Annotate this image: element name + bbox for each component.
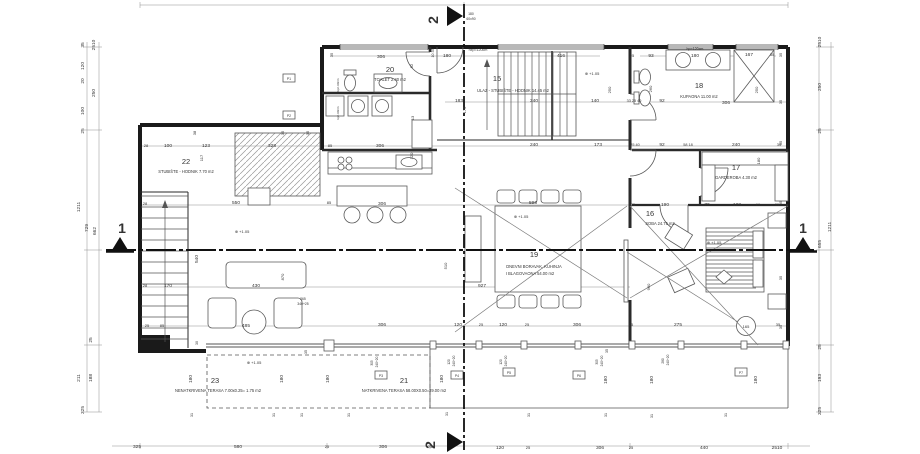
console-table [248, 188, 270, 205]
dim-label: 35 [605, 349, 609, 353]
dining-chair [497, 295, 515, 308]
dim-label: 25 [630, 53, 635, 58]
dim-label: 25 [817, 344, 823, 350]
dim-label: 70 [704, 202, 710, 208]
dim-label: 13 [410, 115, 415, 120]
dim-label: hxp=120cm [469, 48, 488, 52]
dim-label: 211 [76, 374, 82, 382]
room-label: NENATKRIVENA TERASA 7.00x0.25= 1.75 m2 [175, 388, 262, 393]
dim-label: 35 [778, 52, 783, 57]
dim-label: 180 [468, 12, 474, 16]
dining-chair [519, 295, 537, 308]
dining-chair [541, 190, 559, 203]
dim-label: 240+20 [666, 354, 670, 365]
dim-label: 306 [377, 54, 385, 60]
post [430, 341, 436, 349]
dim-label: 120 [447, 359, 451, 365]
dim-label: 25 [145, 323, 150, 328]
post [521, 341, 527, 349]
section-label: 1 [799, 220, 807, 236]
dim-label: 25 [80, 128, 86, 134]
dim-label: 25 [629, 322, 634, 327]
dim-label: 35 [80, 42, 86, 48]
wc-bowl [640, 69, 651, 85]
wardrobe-shelf [775, 165, 788, 201]
room-label: NATKRIVENA TERASA 58.00X0.50=29.00 m2 [362, 388, 447, 393]
pillow [753, 260, 763, 287]
room-number: 19 [530, 250, 538, 259]
dim-label: 190 [661, 202, 669, 208]
dim-label: 120 [454, 322, 462, 328]
sink [676, 53, 691, 68]
post [783, 341, 789, 349]
room-number: 22 [182, 157, 190, 166]
dim-label: 180 [439, 375, 445, 383]
dim-label: 120 [499, 322, 507, 328]
stairs-entry-arrowhead [484, 59, 490, 67]
furniture [208, 50, 789, 379]
post [324, 340, 334, 351]
dim-label: 31 [604, 413, 608, 417]
dim-label: 325 [133, 444, 141, 450]
glass-wall-south [206, 344, 788, 347]
dim-label: 92 [659, 98, 665, 104]
dim-label: P6 [577, 374, 581, 378]
dim-label: 100 [164, 143, 172, 149]
post [476, 341, 482, 349]
dim-label: P4 [455, 374, 459, 378]
bar-stool [367, 207, 383, 223]
dryer-drum [376, 100, 389, 113]
hob-burner [338, 157, 344, 163]
room-number: 20 [386, 65, 394, 74]
pillow [753, 231, 763, 258]
room-label: I BLAGOVAONA 54.00 m2 [506, 271, 555, 276]
dim-label: 325 [80, 406, 86, 414]
post [741, 341, 747, 349]
dim-label: 510 [443, 262, 448, 269]
room-label: STUBIŠTE - HODNIK 7.70 m2 [158, 169, 214, 174]
room-number: 23 [211, 376, 219, 385]
hob-burner [346, 164, 352, 170]
dim-label: 306 [376, 143, 384, 149]
dim-label: 123 [202, 143, 210, 149]
dim-label: 25 [817, 128, 823, 134]
section-label: 2 [422, 441, 438, 449]
hob-burner [338, 164, 344, 170]
dim-label: 25 [479, 322, 484, 327]
dim-label: 729 [84, 224, 90, 232]
dim-label: 440 [700, 445, 708, 451]
dim-label: 265 [300, 297, 306, 301]
dim-label: 180 [279, 375, 285, 383]
dim-label: 28 [143, 283, 148, 288]
dim-label: 580 [234, 444, 242, 450]
dim-label: 180 [753, 376, 759, 384]
dim-label: 35 [305, 130, 310, 135]
dining-chair [541, 295, 559, 308]
terrace [206, 344, 788, 408]
dim-label: 250 [91, 89, 97, 97]
dim-label: 30 [195, 341, 199, 345]
dim-label: 20 [80, 78, 86, 84]
dim-label: 662 [92, 227, 98, 235]
section-marker-triangle-1-left [112, 237, 128, 250]
dim-label: 325 [817, 407, 823, 415]
dim-label: 240+20 [375, 356, 379, 367]
dining-chair [563, 295, 581, 308]
dim-label: 60 [756, 202, 761, 207]
room-number: 16 [646, 209, 654, 218]
dim-label: 128 [733, 202, 741, 208]
dim-label: 120 [496, 445, 504, 451]
dim-label: 35 [280, 130, 285, 135]
section-marker-triangle-1-right [795, 237, 811, 250]
wardrobe-shelf [702, 165, 715, 201]
post [678, 341, 684, 349]
washer-drum [352, 100, 365, 113]
hob-burner [346, 157, 352, 163]
dim-label: 870 [280, 273, 285, 280]
dim-label: ⊕ +1.05 [585, 71, 600, 76]
nook-door-swing [630, 150, 656, 176]
bedroom [665, 213, 786, 336]
dining-chair [563, 190, 581, 203]
sofa [226, 262, 306, 288]
dim-label: 180 [325, 375, 331, 383]
dim-label: 120 [80, 62, 86, 70]
dim-label: P2 [287, 114, 291, 118]
dim-label: kpn 90cm [336, 78, 340, 92]
dim-label: 93 [648, 53, 654, 59]
dim-label: 250 [607, 86, 612, 93]
wall-corner-block [140, 335, 170, 353]
dim-label: P3 [379, 374, 383, 378]
dim-label: 2510 [772, 445, 783, 451]
terrace-21-edge [430, 346, 788, 408]
nightstand [768, 213, 786, 228]
wc-cistern [634, 71, 639, 83]
dim-label: 35 [304, 350, 308, 354]
dim-label: 305 [595, 359, 599, 365]
dim-label: 260 [648, 85, 653, 92]
dim-label: 25 [525, 322, 530, 327]
dim-label: 430 [252, 283, 260, 289]
dim-label: 550 [232, 200, 240, 206]
dim-label: 33 25 40 [627, 99, 642, 103]
wc-cistern [344, 70, 356, 75]
floor-plan-canvas: 3525101202025010025121172966225211188325… [0, 0, 920, 454]
dim-label: 960 [646, 283, 651, 290]
dining-chair [497, 190, 515, 203]
dim-label: 306 [596, 445, 604, 451]
section-marker-triangle-2-top [447, 6, 463, 26]
armchair [208, 298, 236, 328]
dim-label: 240 [530, 98, 538, 104]
bar-stool [390, 207, 406, 223]
dim-label: 167 [745, 52, 753, 58]
dim-label: 117 [199, 154, 204, 161]
entrance-door-swing [437, 47, 463, 73]
dim-label: 188 [88, 374, 94, 382]
dim-label: 31 [347, 413, 351, 417]
dim-label: 240 [732, 142, 740, 148]
dim-label: hp=120cm [687, 47, 704, 51]
dim-label: 31 [300, 413, 304, 417]
dim-label: 250 [754, 86, 759, 93]
room-label: KUPAONA 11.00 m2 [680, 94, 718, 99]
dim-label: 35 [776, 322, 781, 327]
dim-label: 250 [817, 83, 823, 91]
terrace-23-dashed-outline [207, 355, 430, 408]
terrace-posts [324, 340, 789, 351]
dim-label: 173 [594, 142, 602, 148]
stairs-west-arrowhead [162, 200, 168, 208]
dim-label: 25 [629, 445, 634, 450]
floor-plan-page: 3525101202025010025121172966225211188325… [0, 0, 920, 454]
dim-label: 35 [770, 52, 775, 57]
dim-label: 306 [722, 100, 730, 106]
dim-label: 60x90 [466, 17, 475, 21]
stairs-entry-treads [498, 52, 576, 136]
dim-label: 92 [409, 63, 414, 68]
dim-label: 340+25 [297, 302, 309, 306]
dim-label: 306 [378, 322, 386, 328]
dim-label: 180 [649, 376, 655, 384]
dim-label: P7 [739, 371, 743, 375]
stairs-west-treads [141, 196, 188, 339]
dim-label: 165 [743, 324, 750, 329]
dim-label: 280 [661, 358, 665, 364]
dim-label: 175 [462, 106, 467, 113]
dim-label: 170 [164, 283, 172, 289]
dim-label: 2510 [817, 36, 823, 47]
dim-label: 927 [478, 283, 486, 289]
dim-label: 306 [379, 444, 387, 450]
dim-label: 240+20 [504, 355, 508, 366]
dim-label: P1 [287, 77, 291, 81]
dim-label: ⊕ +1.05 [247, 360, 262, 365]
room-number: 17 [732, 163, 740, 172]
dim-label: 306 [573, 322, 581, 328]
dim-label: 240+20 [600, 355, 604, 366]
fridge [412, 120, 432, 148]
dim-label: 120 [499, 359, 503, 365]
dim-label: 240 [530, 142, 538, 148]
dim-label: 25 [526, 445, 531, 450]
room-number: 15 [493, 74, 501, 83]
dim-label: 540 [194, 255, 200, 263]
dim-label: 58 18 [683, 143, 693, 147]
dim-label: 655 [817, 240, 823, 248]
dim-label: ⊕ +1.05 [707, 240, 722, 245]
stairs-upper-hatch [235, 133, 320, 196]
dim-label: 10 35 [431, 49, 435, 58]
dim-label: 35 [778, 99, 783, 104]
dim-label: 180 [603, 376, 609, 384]
post [575, 341, 581, 349]
room-number: 21 [400, 376, 408, 385]
sink [706, 53, 721, 68]
chair-rotated [665, 223, 693, 249]
room-label: ULAZ - STUBIŠTE - HODNIK 14.45 m2 [477, 88, 550, 93]
dim-label: 25 40 [630, 143, 640, 147]
dim-label: 2510 [91, 39, 97, 50]
dim-label: kpn 90cm [336, 106, 340, 120]
dim-label: 240+20 [452, 355, 456, 366]
nightstand [768, 294, 786, 309]
dim-label: 485 [242, 323, 250, 329]
wardrobe-shelf [702, 152, 788, 165]
dim-label: 1211 [76, 202, 82, 213]
dim-label: 25 [325, 444, 330, 449]
section-label: 2 [425, 16, 441, 24]
dim-label: 596 [529, 200, 537, 206]
coffee-table [242, 310, 266, 334]
dim-label: 85 [328, 143, 333, 148]
wc-bowl [345, 75, 356, 91]
dim-label: 1211 [827, 222, 833, 233]
room-number: 18 [695, 81, 703, 90]
dim-label: 85 [327, 200, 332, 205]
window-glazing-lines [340, 44, 778, 50]
dim-label: 100 [80, 107, 86, 115]
dim-label: 180 [691, 53, 699, 59]
dim-label: 183 [455, 98, 463, 104]
shelf-niche [326, 96, 344, 116]
dim-label: 306 [378, 201, 386, 207]
dim-label: 35 [778, 275, 783, 280]
dim-label: 140 [591, 98, 599, 104]
dim-label: ⊕ +1.05 [514, 214, 529, 219]
dim-label: 275 [674, 322, 682, 328]
dim-label: 38 [192, 130, 197, 135]
bar-stool [344, 207, 360, 223]
dim-label: 25 [631, 202, 636, 207]
dim-label: 35 [777, 142, 782, 147]
dim-label: 328 [268, 143, 276, 149]
dim-label: 31 [190, 413, 194, 417]
dim-label: 92 [659, 142, 665, 148]
dim-label: 31 [445, 412, 449, 416]
kitchen-island [337, 186, 407, 206]
dim-label: 193 [817, 374, 823, 382]
section-label: 1 [118, 220, 126, 236]
post [629, 341, 635, 349]
room-label: GARDEROBA 4.30 m2 [715, 175, 758, 180]
dim-label: 31 [527, 413, 531, 417]
room-label: SOBA 24.75 m2 [645, 221, 675, 226]
dim-label: 180 [188, 375, 194, 383]
dim-label: 180 [443, 53, 451, 59]
dim-label: 35 [775, 202, 780, 207]
dim-label: ⊕ +1.05 [235, 229, 250, 234]
dim-label: 25 [88, 337, 94, 343]
section-marker-triangle-2-bottom [447, 432, 463, 452]
dim-label: 31 [650, 414, 654, 418]
dim-label: 120 [409, 152, 414, 159]
dim-label: 305 [370, 360, 374, 366]
dim-label: 31 [724, 413, 728, 417]
dim-label: P5 [507, 371, 511, 375]
room-label: TOALET 2.40 m2 [374, 77, 406, 82]
dim-label: 416 [557, 53, 565, 59]
room-label: DNEVNI BORAVAK, KUHINJA [506, 264, 562, 269]
dim-label: 28 [143, 201, 148, 206]
dim-label: 85 [160, 323, 165, 328]
dim-label: 31 [272, 413, 276, 417]
dim-label: 180 [756, 157, 761, 164]
dim-label: 28 [144, 143, 149, 148]
dim-label: 35 [329, 52, 334, 57]
